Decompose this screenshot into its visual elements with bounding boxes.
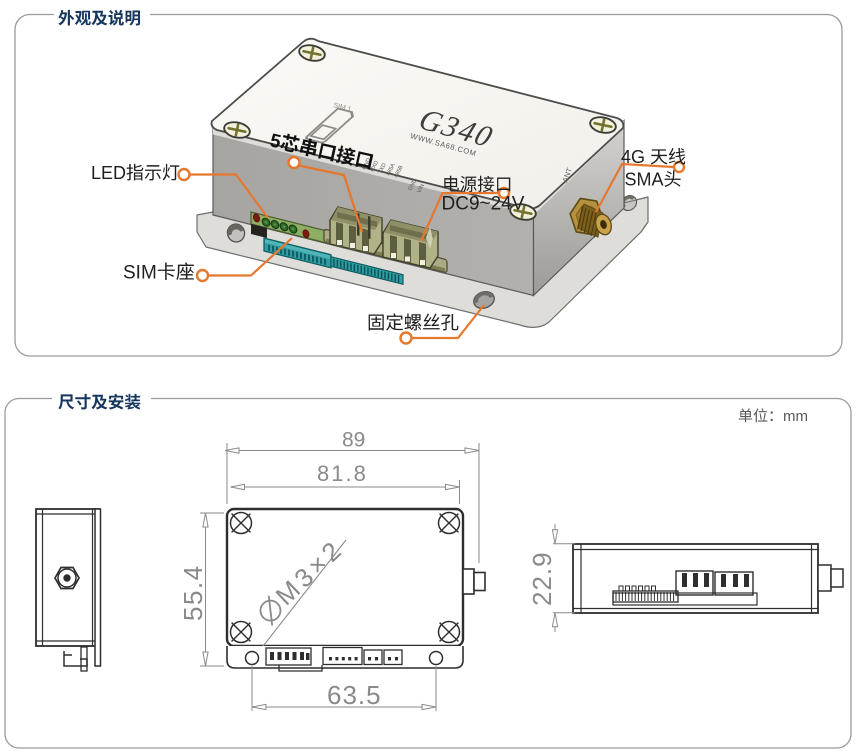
svg-text:81.8: 81.8 — [317, 461, 368, 486]
svg-text:LED: LED — [91, 163, 126, 183]
svg-text:4G: 4G — [621, 147, 645, 167]
svg-text:89: 89 — [342, 429, 365, 452]
svg-text:SMA: SMA — [625, 170, 664, 190]
svg-text:DC9~24V: DC9~24V — [442, 194, 525, 215]
svg-text:55.4: 55.4 — [178, 564, 208, 621]
svg-text:63.5: 63.5 — [327, 680, 382, 710]
svg-text:22.9: 22.9 — [527, 551, 557, 606]
svg-text:mm: mm — [783, 408, 808, 425]
svg-text:SIM: SIM — [123, 263, 157, 284]
